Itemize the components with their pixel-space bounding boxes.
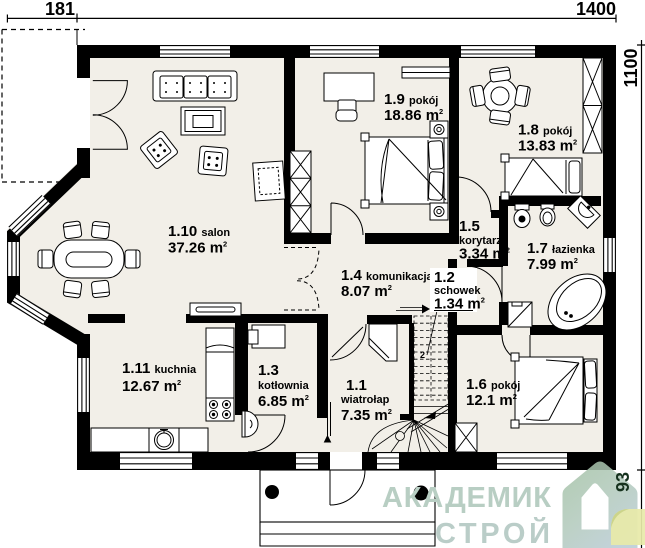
svg-text:1.3: 1.3 (258, 362, 279, 379)
svg-text:37.26 m2: 37.26 m2 (168, 240, 227, 257)
svg-text:12.1 m2: 12.1 m2 (466, 392, 517, 409)
svg-text:АКАДЕМИК: АКАДЕМИК (382, 482, 551, 514)
svg-text:13.83 m2: 13.83 m2 (518, 138, 577, 155)
svg-text:2: 2 (420, 350, 425, 360)
svg-text:1.5: 1.5 (459, 218, 480, 235)
svg-text:wiatrołap: wiatrołap (340, 394, 390, 406)
svg-text:1.34 m2: 1.34 m2 (434, 296, 485, 313)
svg-text:7.99 m2: 7.99 m2 (527, 256, 578, 273)
svg-text:1.2: 1.2 (434, 269, 455, 286)
svg-text:8.07 m2: 8.07 m2 (341, 283, 392, 300)
svg-text:12.67 m2: 12.67 m2 (122, 378, 181, 395)
svg-text:1400: 1400 (576, 0, 616, 19)
svg-text:kotłownia: kotłownia (258, 380, 310, 392)
svg-text:181: 181 (45, 0, 75, 19)
svg-text:3.34 m2: 3.34 m2 (459, 246, 510, 263)
svg-text:18.86 m2: 18.86 m2 (384, 107, 443, 124)
svg-text:93: 93 (613, 472, 633, 492)
svg-text:7.35 m2: 7.35 m2 (341, 407, 392, 424)
svg-text:6.85 m2: 6.85 m2 (258, 393, 309, 410)
svg-text:1100: 1100 (621, 48, 641, 87)
svg-text:1.1: 1.1 (346, 377, 367, 394)
svg-text:СТРОЙ: СТРОЙ (435, 516, 550, 548)
